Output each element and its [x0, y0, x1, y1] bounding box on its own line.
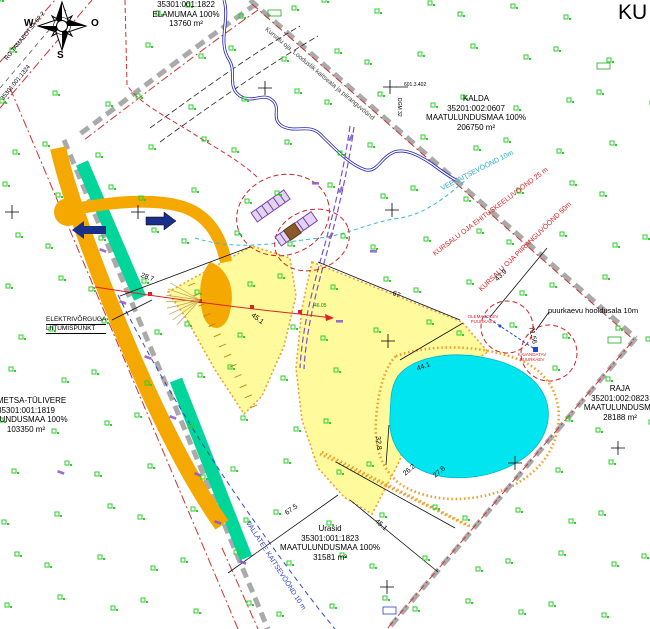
- parcel-label-elamumaa-line: ELAMUMAA 100%: [116, 10, 256, 20]
- vegetation-marker: [95, 472, 102, 477]
- vegetation-marker: [288, 242, 295, 247]
- vegetation-marker: [569, 519, 576, 524]
- vegetation-marker: [368, 143, 375, 148]
- vegetation-marker: [198, 373, 205, 378]
- vegetation-marker: [613, 243, 620, 248]
- vegetation-marker: [229, 46, 236, 51]
- vegetation-marker: [421, 135, 428, 140]
- vegetation-marker: [570, 181, 577, 186]
- parcel-label-kalda: KALDA35201:002:0607MAATULUNDUSMAA 100%20…: [391, 94, 561, 132]
- vegetation-marker: [9, 367, 16, 372]
- cadastral-plan-canvas: KUNWOS35301:001:1822ELAMUMAA 100%13760 m…: [0, 0, 650, 629]
- vegetation-marker: [553, 366, 560, 371]
- vegetation-marker: [152, 228, 159, 233]
- vegetation-marker: [16, 233, 23, 238]
- vegetation-marker: [274, 510, 281, 515]
- vegetation-marker: [284, 459, 291, 464]
- vegetation-marker: [467, 280, 474, 285]
- vegetation-marker: [55, 512, 62, 517]
- vegetation-marker: [182, 239, 189, 244]
- buildings: [251, 190, 317, 246]
- vegetation-marker: [610, 141, 617, 146]
- vegetation-marker: [550, 283, 557, 288]
- vegetation-marker: [191, 507, 198, 512]
- boundary-point-label-blue: [383, 607, 396, 614]
- vegetation-marker: [194, 609, 201, 614]
- vegetation-marker: [65, 461, 72, 466]
- dimension-label: 32.8: [373, 436, 383, 450]
- vegetation-marker: [646, 337, 650, 342]
- vegetation-marker: [383, 596, 390, 601]
- vegetation-marker: [13, 150, 20, 155]
- vegetation-marker: [471, 44, 478, 49]
- vegetation-marker: [567, 98, 574, 103]
- vegetation-marker: [511, 4, 518, 9]
- parcel-label-urasid-line: Urasid: [240, 524, 420, 534]
- annotation-electric-connection-line: LIITUMISPUNKT: [46, 325, 106, 334]
- vegetation-marker: [19, 335, 26, 340]
- vegetation-marker: [292, 6, 299, 11]
- vegetation-marker: [96, 153, 103, 158]
- compass-south-label: S: [57, 50, 64, 62]
- parcel-label-sumetsa-line: 35301:001:1819: [0, 406, 111, 416]
- vegetation-marker: [549, 602, 556, 607]
- vegetation-marker: [2, 520, 9, 525]
- vegetation-marker: [46, 244, 53, 249]
- survey-cross: [258, 81, 272, 95]
- vegetation-marker: [411, 186, 418, 191]
- vegetation-marker: [3, 182, 10, 187]
- vegetation-marker: [464, 197, 471, 202]
- vegetation-marker: [556, 468, 563, 473]
- vegetation-marker: [554, 47, 561, 52]
- vegetation-marker: [365, 60, 372, 65]
- vegetation-marker: [146, 43, 153, 48]
- vegetation-marker: [559, 551, 566, 556]
- vegetation-marker: [106, 102, 113, 107]
- vegetation-marker: [335, 49, 342, 54]
- parcel-label-raja: RAJA35201:002:0823MAATULUNDUSMA28188 m²: [540, 384, 650, 422]
- utility-mark: [328, 232, 334, 239]
- vegetation-marker: [507, 240, 514, 245]
- vegetation-marker: [281, 376, 288, 381]
- boundary-point-label: [608, 337, 621, 343]
- parcel-label-kalda-line: 35201:002:0607: [391, 104, 561, 114]
- utility-mark: [99, 248, 106, 253]
- vegetation-marker: [295, 89, 302, 94]
- parcel-label-sumetsa-line: TULUNDUSMAA 100%: [0, 415, 111, 425]
- vegetation-marker: [330, 604, 337, 609]
- vegetation-marker: [380, 513, 387, 518]
- vegetation-marker: [506, 559, 513, 564]
- vegetation-marker: [189, 105, 196, 110]
- survey-cross: [383, 80, 397, 94]
- vegetation-marker: [5, 603, 12, 608]
- vegetation-marker: [6, 284, 13, 289]
- parcel-label-elamumaa-line: 13760 m²: [116, 19, 256, 29]
- vegetation-marker: [12, 469, 19, 474]
- vegetation-marker: [245, 199, 252, 204]
- power-pole-mark: [148, 292, 152, 296]
- vegetation-marker: [424, 237, 431, 242]
- sheet-title-fragment: KU: [618, 0, 647, 25]
- parcel-label-kalda-line: 206750 m²: [391, 123, 561, 133]
- vegetation-marker: [108, 504, 115, 509]
- vegetation-marker: [433, 505, 440, 510]
- vegetation-marker: [560, 232, 567, 237]
- vegetation-marker: [643, 235, 650, 240]
- vegetation-marker: [606, 377, 613, 382]
- parcel-label-elamumaa-line: 35301:001:1822: [116, 0, 256, 10]
- vegetation-marker: [474, 146, 481, 151]
- vegetation-marker: [232, 148, 239, 153]
- parcel-label-sumetsa-line: SUMETSA-TÜLIVERE: [0, 396, 111, 406]
- vegetation-marker: [609, 460, 616, 465]
- vegetation-marker: [138, 515, 145, 520]
- utility-mark: [370, 250, 377, 253]
- vegetation-marker: [111, 606, 118, 611]
- vegetation-marker: [241, 416, 248, 421]
- parcel-label-kalda-line: KALDA: [391, 94, 561, 104]
- survey-cross: [611, 441, 625, 455]
- vegetation-marker: [59, 276, 66, 281]
- utility-mark: [144, 355, 151, 360]
- vegetation-marker: [466, 599, 473, 604]
- vegetation-marker: [155, 330, 162, 335]
- vegetation-marker: [413, 607, 420, 612]
- vegetation-marker: [0, 0, 4, 2]
- vegetation-marker: [423, 556, 430, 561]
- utility-mark: [336, 320, 343, 323]
- vegetation-marker: [428, 1, 435, 6]
- vegetation-marker: [109, 185, 116, 190]
- vegetation-marker: [199, 54, 206, 59]
- vegetation-marker: [149, 145, 156, 150]
- vegetation-marker: [599, 511, 606, 516]
- vegetation-marker: [378, 92, 385, 97]
- vegetation-marker: [371, 245, 378, 250]
- parcel-label-kalda-line: MAATULUNDUSMAA 100%: [391, 113, 561, 123]
- vegetation-marker: [58, 595, 65, 600]
- vegetation-marker: [603, 275, 610, 280]
- vegetation-marker: [563, 334, 570, 339]
- vegetation-marker: [98, 555, 105, 560]
- vegetation-marker: [141, 598, 148, 603]
- parcel-label-elamumaa: 35301:001:1822ELAMUMAA 100%13760 m²: [116, 0, 256, 29]
- annotation-green-note: 46.05: [314, 303, 327, 309]
- vegetation-marker: [181, 558, 188, 563]
- power-pole-mark: [250, 305, 254, 309]
- vegetation-marker: [607, 58, 614, 63]
- vegetation-marker: [600, 192, 607, 197]
- parcel-label-raja-line: RAJA: [540, 384, 650, 394]
- survey-cross: [5, 205, 19, 219]
- parcel-label-raja-line: 28188 m²: [540, 413, 650, 423]
- annotation-existing-well: OLEMASOLEVPUURKAEV: [459, 314, 507, 325]
- vegetation-marker: [231, 467, 238, 472]
- annotation-planned-well: KAVANDATAVPUURKAEV: [508, 352, 556, 363]
- vegetation-marker: [612, 562, 619, 567]
- parcel-label-sumetsa-line: 103350 m²: [0, 425, 111, 435]
- vegetation-marker: [341, 234, 348, 239]
- vegetation-marker: [370, 564, 377, 569]
- compass-rose: [38, 2, 86, 50]
- vegetation-marker: [516, 508, 523, 513]
- vegetation-marker: [43, 142, 50, 147]
- boundary-point-label: [597, 63, 610, 69]
- vegetation-marker: [135, 413, 142, 418]
- vegetation-marker: [92, 370, 99, 375]
- vegetation-marker: [414, 288, 421, 293]
- vegetation-marker: [277, 612, 284, 617]
- vegetation-marker: [384, 277, 391, 282]
- vegetation-marker: [510, 323, 517, 328]
- vegetation-marker: [322, 0, 329, 3]
- vegetation-marker: [463, 516, 470, 521]
- vegetation-marker: [53, 91, 60, 96]
- vegetation-marker: [62, 378, 69, 383]
- vegetation-marker: [520, 291, 527, 296]
- vegetation-marker: [458, 12, 465, 17]
- annotation-benchmark: 601.3.402: [404, 82, 426, 88]
- vegetation-marker: [375, 9, 382, 14]
- vegetation-marker: [597, 90, 604, 95]
- parcel-label-urasid-line: 35301:001:1823: [240, 534, 420, 544]
- vegetation-marker: [381, 194, 388, 199]
- vegetation-marker: [285, 140, 292, 145]
- vegetation-marker: [504, 138, 511, 143]
- vegetation-marker: [328, 183, 335, 188]
- vegetation-marker: [294, 427, 301, 432]
- annotation-existing-well-line: PUURKAEV: [459, 319, 507, 324]
- vegetation-marker: [642, 554, 649, 559]
- utility-mark: [57, 470, 64, 475]
- compass-east-label: O: [91, 18, 99, 30]
- vegetation-marker: [325, 100, 332, 105]
- vegetation-marker: [192, 188, 199, 193]
- zone-label-well-maintenance: puurkaevu hooldusala 10m: [548, 306, 638, 315]
- vegetation-marker: [89, 287, 96, 292]
- vegetation-marker: [602, 613, 609, 618]
- vegetation-marker: [524, 55, 531, 60]
- annotation-electric-connection-line: ELEKTRIVÕRGUGA: [46, 316, 106, 325]
- vegetation-marker: [557, 149, 564, 154]
- vegetation-marker: [564, 15, 571, 20]
- vegetation-marker: [56, 193, 63, 198]
- survey-cross: [380, 580, 394, 594]
- vegetation-marker: [15, 552, 22, 557]
- vegetation-marker: [148, 464, 155, 469]
- parcel-label-raja-line: 35201:002:0823: [540, 394, 650, 404]
- annotation-point-code: DGM 32: [396, 98, 402, 117]
- vegetation-marker: [247, 601, 254, 606]
- vegetation-marker: [418, 52, 425, 57]
- vegetation-marker: [291, 325, 298, 330]
- vegetation-marker: [235, 231, 242, 236]
- vegetation-marker: [45, 563, 52, 568]
- parcel-label-sumetsa: SUMETSA-TÜLIVERE35301:001:1819TULUNDUSMA…: [0, 396, 111, 434]
- power-pole-mark: [298, 310, 302, 314]
- vegetation-marker: [151, 566, 158, 571]
- vegetation-marker: [519, 610, 526, 615]
- parcel-label-raja-line: MAATULUNDUSMA: [540, 403, 650, 413]
- annotation-planned-well-line: PUURKAEV: [508, 357, 556, 362]
- vegetation-marker: [596, 428, 603, 433]
- vegetation-marker: [476, 567, 483, 572]
- survey-cross: [385, 203, 399, 217]
- utility-mark: [312, 182, 319, 185]
- vegetation-marker: [477, 229, 484, 234]
- annotation-electric-connection: ELEKTRIVÕRGUGALIITUMISPUNKT: [46, 316, 106, 334]
- pond: [390, 355, 549, 478]
